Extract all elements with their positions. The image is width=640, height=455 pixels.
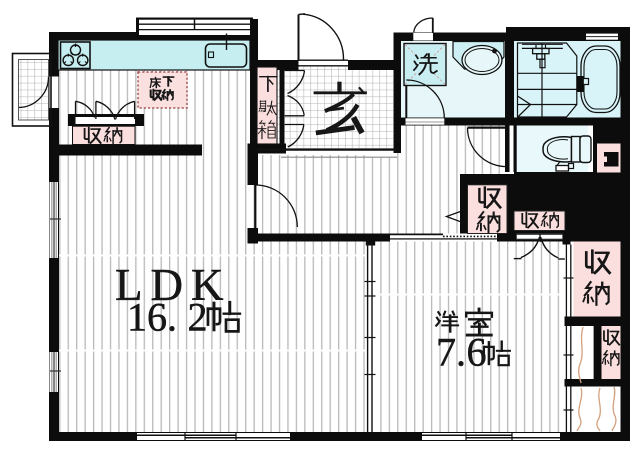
svg-text:7.: 7. [436, 330, 466, 375]
svg-text:16.: 16. [127, 295, 177, 340]
svg-text:2: 2 [188, 295, 208, 340]
